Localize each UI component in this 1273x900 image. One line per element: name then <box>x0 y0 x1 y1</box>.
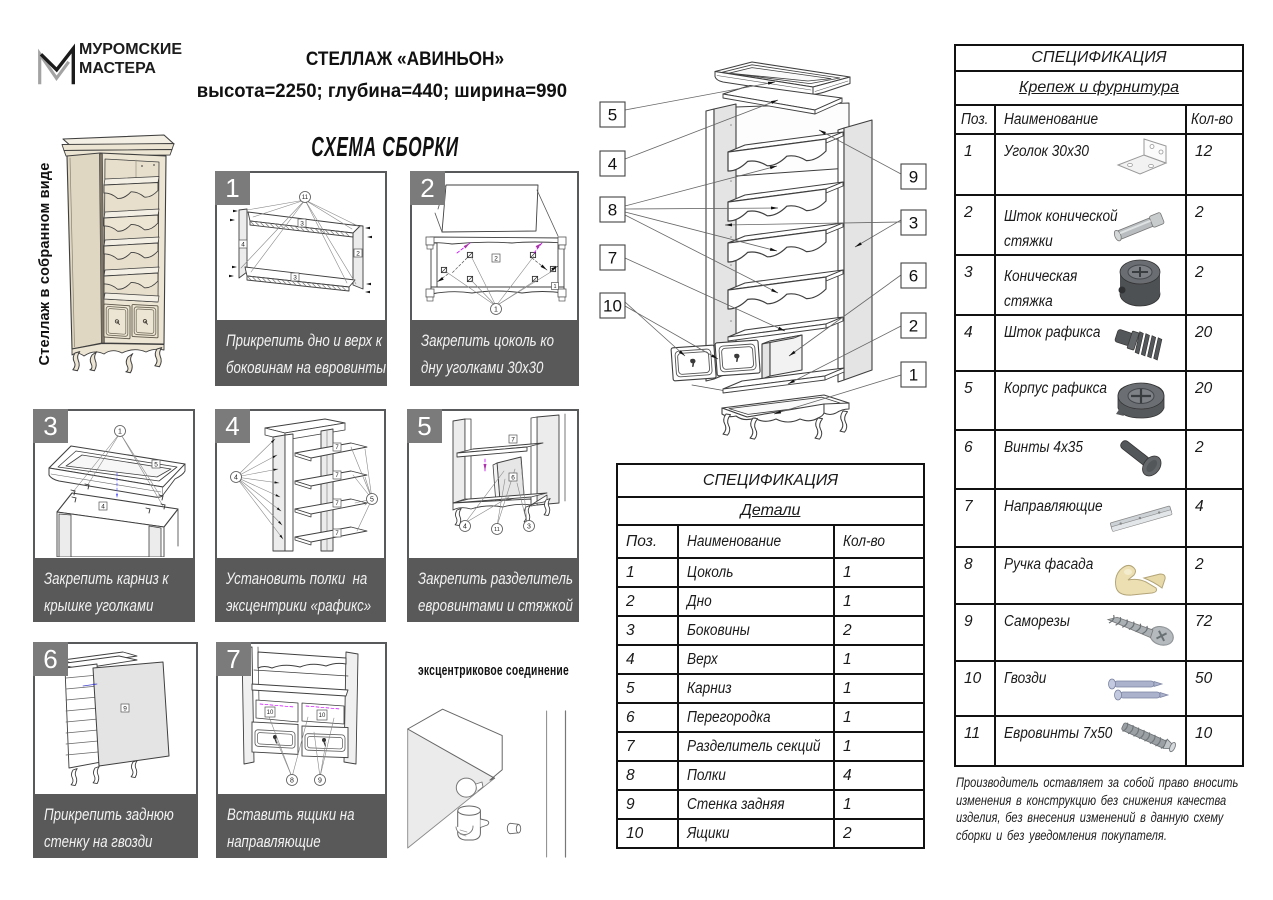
svg-text:4: 4 <box>101 503 105 510</box>
svg-text:3: 3 <box>300 220 304 227</box>
svg-text:10: 10 <box>319 713 326 719</box>
svg-text:2: 2 <box>356 250 360 257</box>
svg-text:8: 8 <box>608 201 617 220</box>
svg-text:8: 8 <box>290 778 294 785</box>
svg-text:11: 11 <box>494 527 500 533</box>
svg-text:3: 3 <box>527 524 531 531</box>
svg-text:5: 5 <box>608 106 617 125</box>
svg-text:7: 7 <box>608 249 617 268</box>
svg-text:1: 1 <box>909 366 918 385</box>
svg-text:3: 3 <box>293 274 297 281</box>
svg-text:2: 2 <box>494 255 498 262</box>
svg-text:3: 3 <box>909 214 918 233</box>
svg-text:5: 5 <box>370 497 374 504</box>
svg-text:6: 6 <box>511 474 515 481</box>
svg-text:9: 9 <box>123 705 127 712</box>
svg-text:4: 4 <box>234 475 238 482</box>
svg-text:9: 9 <box>318 778 322 785</box>
svg-text:4: 4 <box>241 241 245 248</box>
svg-text:7: 7 <box>511 436 515 443</box>
svg-text:10: 10 <box>267 710 274 716</box>
svg-text:1: 1 <box>118 429 122 436</box>
svg-text:5: 5 <box>154 461 158 468</box>
svg-text:4: 4 <box>463 524 467 531</box>
svg-text:1: 1 <box>553 284 556 290</box>
svg-text:1: 1 <box>494 307 498 314</box>
svg-text:4: 4 <box>608 155 617 174</box>
svg-text:11: 11 <box>302 195 309 201</box>
svg-text:9: 9 <box>909 168 918 187</box>
svg-text:6: 6 <box>909 267 918 286</box>
svg-text:2: 2 <box>909 317 918 336</box>
svg-text:10: 10 <box>603 297 622 316</box>
